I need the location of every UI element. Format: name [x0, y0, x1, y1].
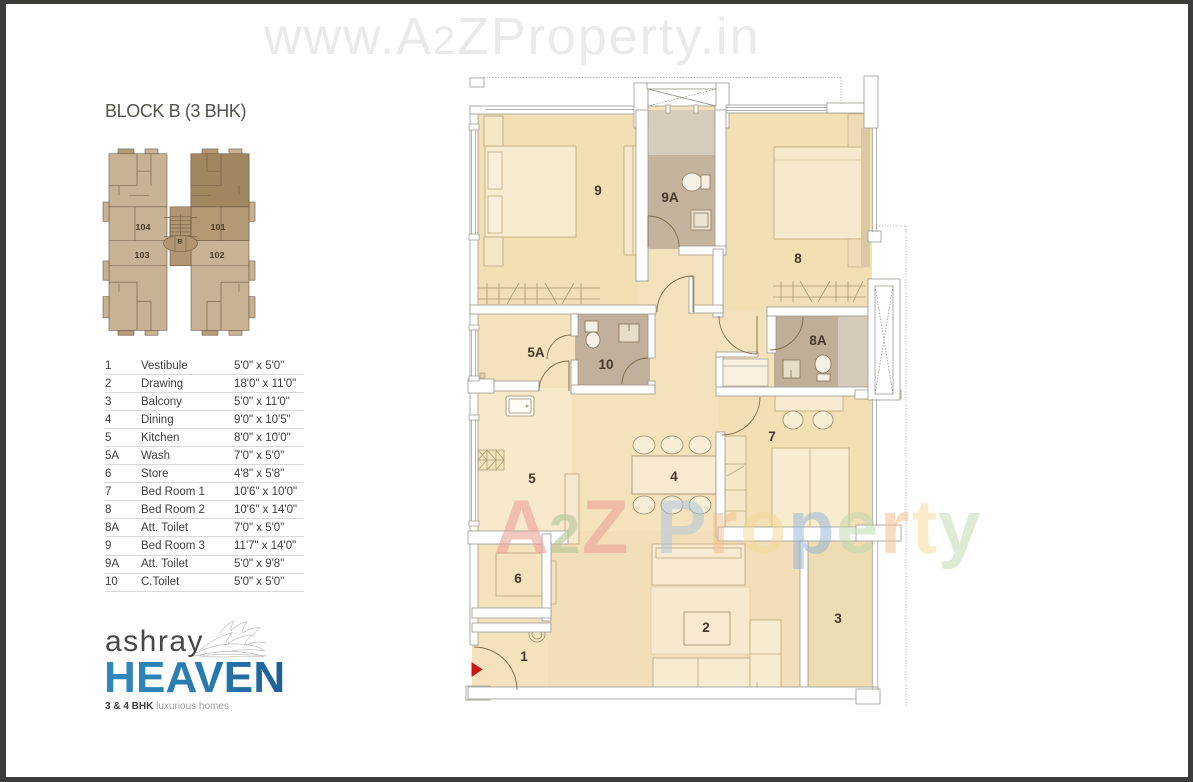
- svg-text:t: t: [912, 485, 937, 570]
- svg-text:y: y: [938, 485, 980, 570]
- svg-text:9: 9: [594, 183, 602, 198]
- svg-text:6: 6: [514, 571, 522, 586]
- svg-text:o: o: [740, 485, 786, 570]
- svg-text:4: 4: [670, 469, 678, 484]
- svg-text:7: 7: [768, 429, 776, 444]
- svg-text:8A: 8A: [809, 333, 827, 348]
- svg-text:8: 8: [794, 251, 802, 266]
- svg-text:r: r: [880, 485, 910, 570]
- svg-text:5: 5: [528, 471, 536, 486]
- svg-text:1: 1: [520, 649, 528, 664]
- svg-text:2: 2: [549, 502, 580, 565]
- svg-text:r: r: [708, 485, 738, 570]
- svg-text:P: P: [656, 485, 707, 570]
- svg-text:p: p: [788, 485, 834, 570]
- svg-text:2: 2: [702, 620, 710, 635]
- svg-text:10: 10: [598, 357, 613, 372]
- svg-text:Z: Z: [582, 485, 628, 570]
- svg-text:A: A: [494, 485, 549, 570]
- svg-text:9A: 9A: [661, 190, 679, 205]
- svg-text:e: e: [836, 485, 878, 570]
- svg-text:3: 3: [834, 611, 842, 626]
- svg-text:5A: 5A: [527, 345, 545, 360]
